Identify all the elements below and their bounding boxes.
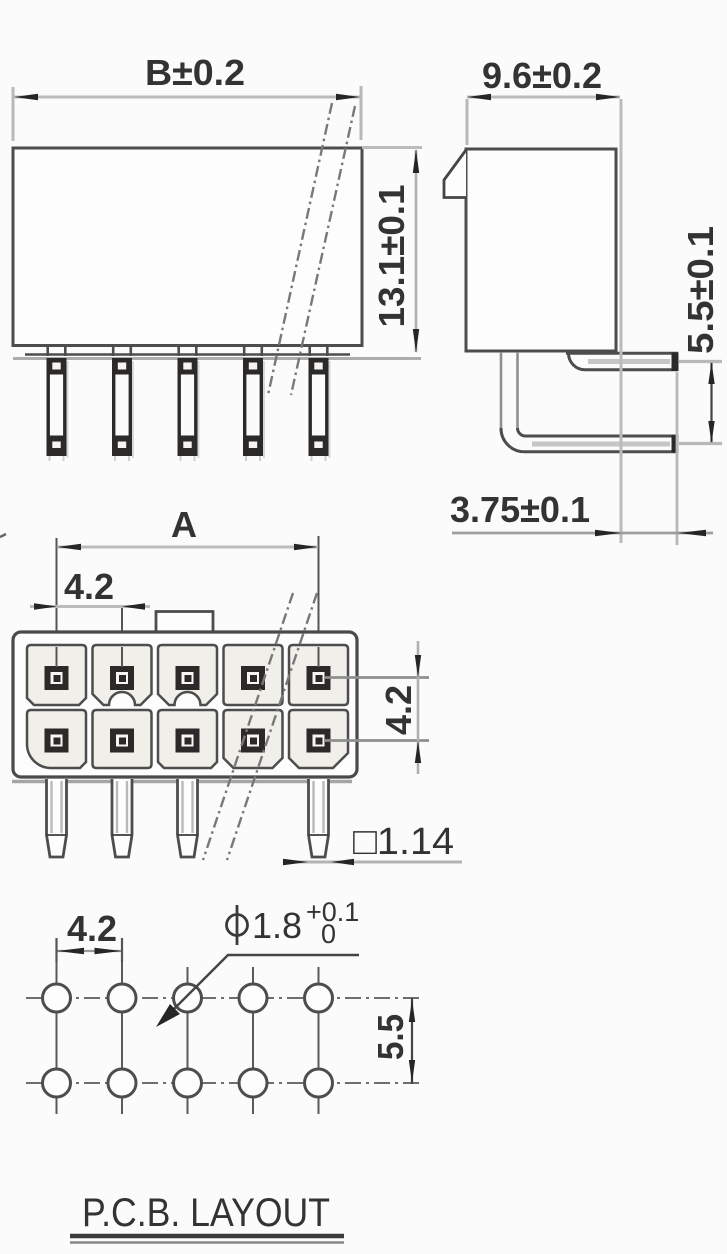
svg-text:A: A	[171, 504, 197, 545]
svg-text:B±0.2: B±0.2	[145, 52, 245, 93]
svg-text:4.2: 4.2	[67, 908, 117, 949]
svg-text:4.2: 4.2	[378, 685, 419, 735]
svg-text:5.5: 5.5	[370, 1014, 411, 1060]
svg-text:□1.14: □1.14	[353, 821, 454, 863]
svg-text:3.75±0.1: 3.75±0.1	[450, 489, 590, 530]
svg-text:P.C.B. LAYOUT: P.C.B. LAYOUT	[82, 1191, 330, 1235]
svg-text:0: 0	[321, 919, 336, 949]
svg-text:9.6±0.2: 9.6±0.2	[482, 55, 602, 96]
svg-text:4.2: 4.2	[64, 566, 114, 607]
svg-text:13.1±0.1: 13.1±0.1	[371, 185, 412, 328]
svg-text:5.5±0.1: 5.5±0.1	[680, 226, 721, 354]
svg-text:1.8: 1.8	[252, 905, 302, 946]
